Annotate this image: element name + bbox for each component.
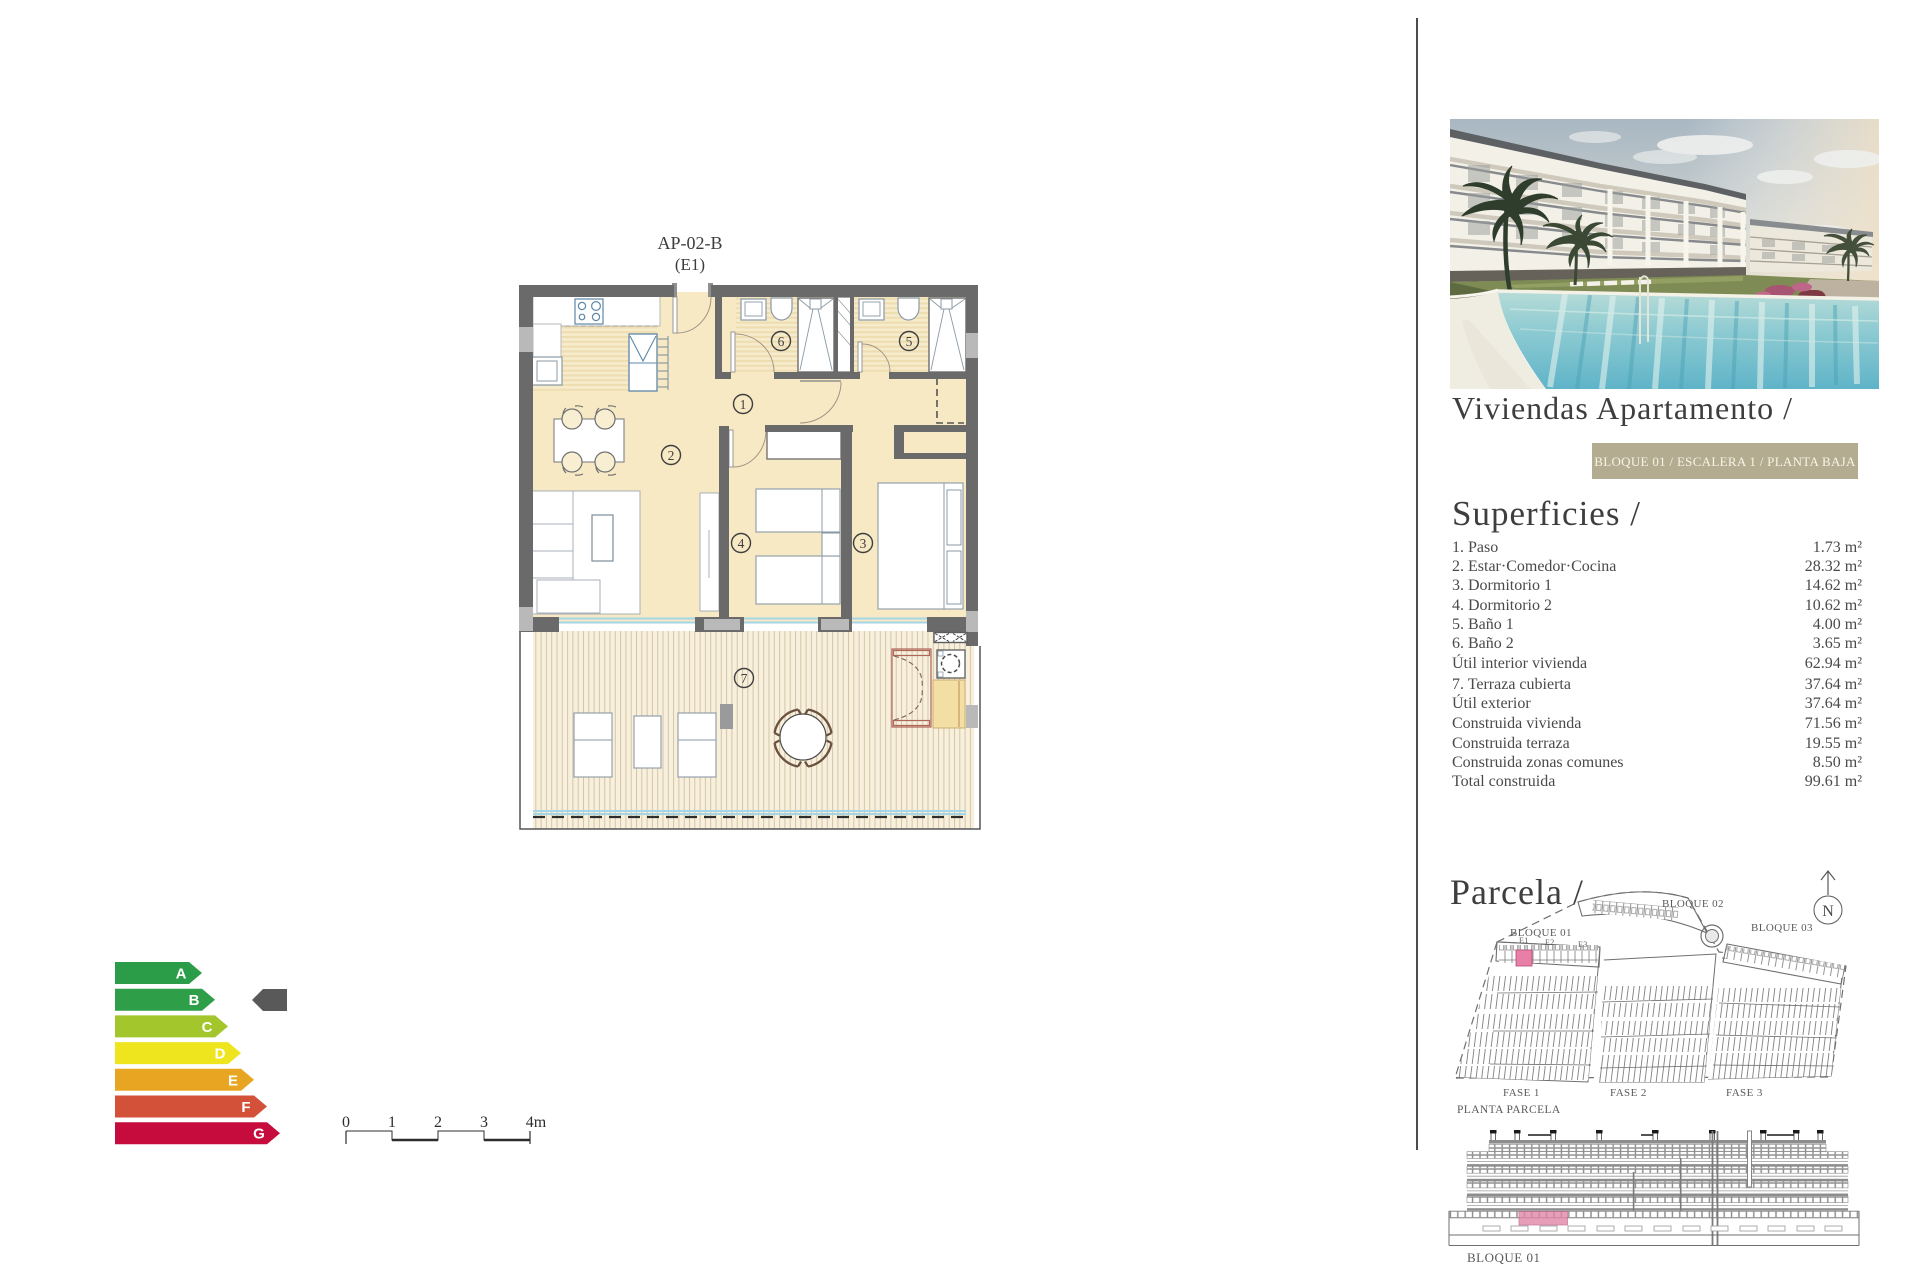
svg-text:FASE 1: FASE 1 — [1503, 1087, 1540, 1099]
svg-text:0: 0 — [342, 1114, 350, 1131]
svg-text:E: E — [228, 1072, 238, 1089]
svg-text:1: 1 — [740, 397, 747, 412]
svg-text:7: 7 — [741, 671, 748, 686]
svg-text:B: B — [189, 992, 200, 1009]
svg-text:4m: 4m — [526, 1114, 547, 1131]
svg-text:3: 3 — [860, 536, 867, 551]
svg-text:3: 3 — [480, 1114, 488, 1131]
svg-text:D: D — [215, 1046, 226, 1063]
svg-text:FASE 2: FASE 2 — [1610, 1087, 1647, 1099]
svg-text:E1: E1 — [1519, 936, 1529, 945]
svg-text:BLOQUE 02: BLOQUE 02 — [1662, 898, 1724, 910]
svg-text:6: 6 — [778, 334, 785, 349]
svg-text:BLOQUE 01: BLOQUE 01 — [1467, 1250, 1540, 1265]
svg-text:F: F — [241, 1099, 250, 1116]
svg-text:4: 4 — [738, 536, 745, 551]
svg-text:2: 2 — [434, 1114, 442, 1131]
svg-text:G: G — [253, 1126, 265, 1143]
svg-text:AP-02-B: AP-02-B — [657, 233, 722, 253]
svg-text:BLOQUE 03: BLOQUE 03 — [1751, 922, 1813, 934]
svg-text:2: 2 — [668, 448, 675, 463]
svg-text:N: N — [1822, 903, 1834, 920]
svg-text:E3: E3 — [1578, 940, 1588, 949]
svg-text:PLANTA PARCELA: PLANTA PARCELA — [1457, 1104, 1561, 1116]
svg-text:5: 5 — [906, 334, 913, 349]
svg-text:1: 1 — [388, 1114, 396, 1131]
svg-text:E2: E2 — [1545, 938, 1555, 947]
svg-text:A: A — [176, 966, 187, 983]
svg-text:C: C — [202, 1019, 213, 1036]
svg-text:(E1): (E1) — [675, 255, 705, 274]
svg-text:FASE 3: FASE 3 — [1726, 1087, 1763, 1099]
